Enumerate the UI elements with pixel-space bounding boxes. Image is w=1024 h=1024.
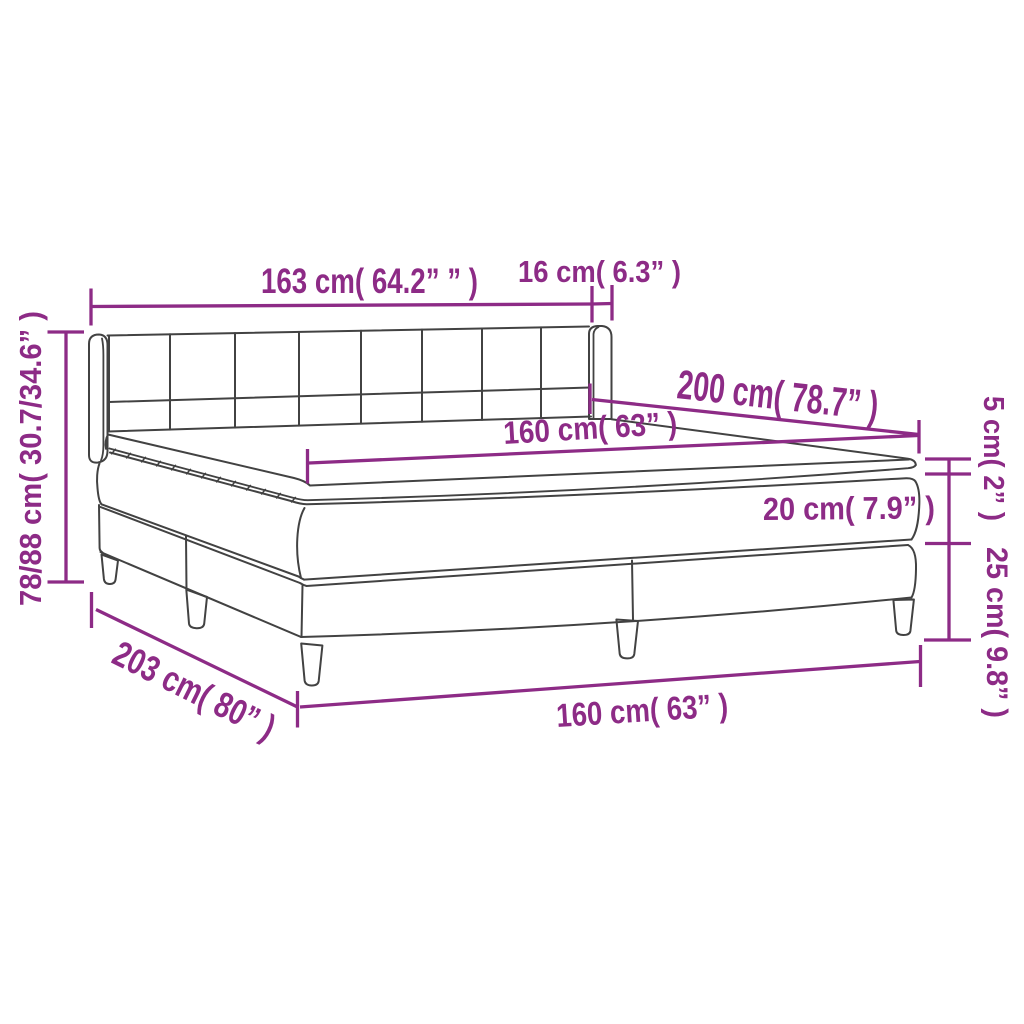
svg-text:5 cm( 2” ): 5 cm( 2” )	[977, 396, 1009, 521]
svg-text:16 cm( 6.3” ): 16 cm( 6.3” )	[518, 254, 681, 289]
svg-text:25 cm( 9.8” ): 25 cm( 9.8” )	[980, 547, 1013, 718]
svg-text:78/88 cm( 30.7/34.6” ): 78/88 cm( 30.7/34.6” )	[13, 311, 48, 606]
svg-text:20 cm( 7.9” ): 20 cm( 7.9” )	[763, 490, 935, 527]
svg-text:163 cm( 64.2” ” ): 163 cm( 64.2” ” )	[261, 262, 478, 301]
